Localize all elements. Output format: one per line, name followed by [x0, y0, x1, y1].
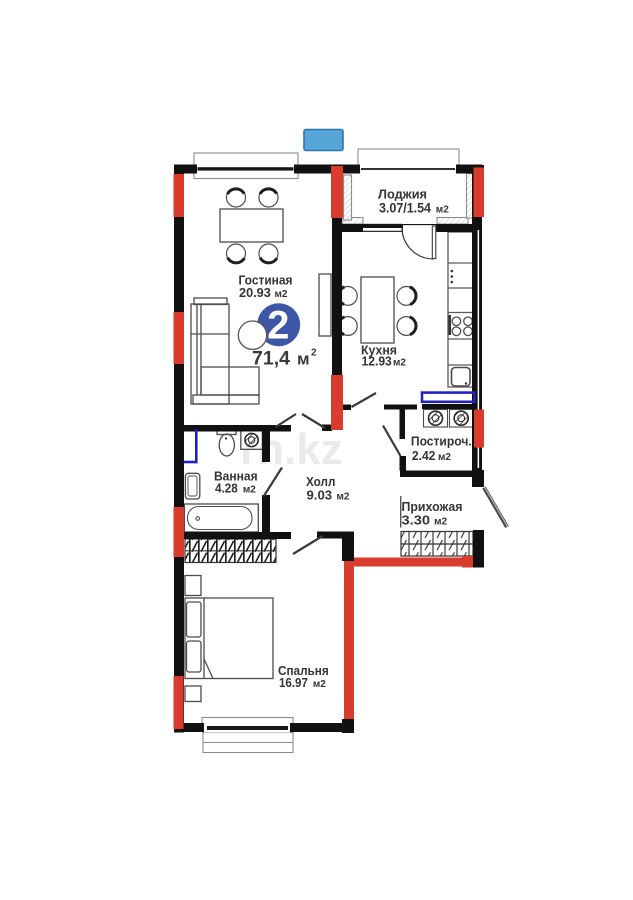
svg-text:м2: м2 — [438, 452, 451, 463]
svg-text:Постироч.: Постироч. — [411, 434, 472, 449]
svg-text:12.93: 12.93 — [362, 354, 392, 369]
svg-text:3.30: 3.30 — [402, 513, 431, 528]
svg-text:9.03: 9.03 — [307, 487, 333, 502]
svg-text:4.28: 4.28 — [215, 481, 238, 496]
svg-text:20.93: 20.93 — [239, 285, 271, 300]
svg-text:2: 2 — [311, 348, 317, 359]
svg-text:м2: м2 — [243, 485, 256, 496]
svg-text:м2: м2 — [434, 517, 447, 528]
svg-text:м2: м2 — [393, 358, 406, 369]
svg-text:71,4: 71,4 — [252, 348, 290, 370]
svg-text:2.42: 2.42 — [412, 448, 436, 463]
svg-text:м2: м2 — [436, 205, 449, 216]
svg-text:2: 2 — [267, 304, 289, 348]
svg-text:3.07/1.54: 3.07/1.54 — [379, 200, 431, 216]
svg-text:16.97: 16.97 — [279, 675, 308, 690]
svg-text:м: м — [297, 350, 310, 369]
svg-text:м2: м2 — [275, 289, 288, 300]
svg-text:м2: м2 — [313, 679, 326, 690]
svg-text:м2: м2 — [337, 491, 350, 502]
